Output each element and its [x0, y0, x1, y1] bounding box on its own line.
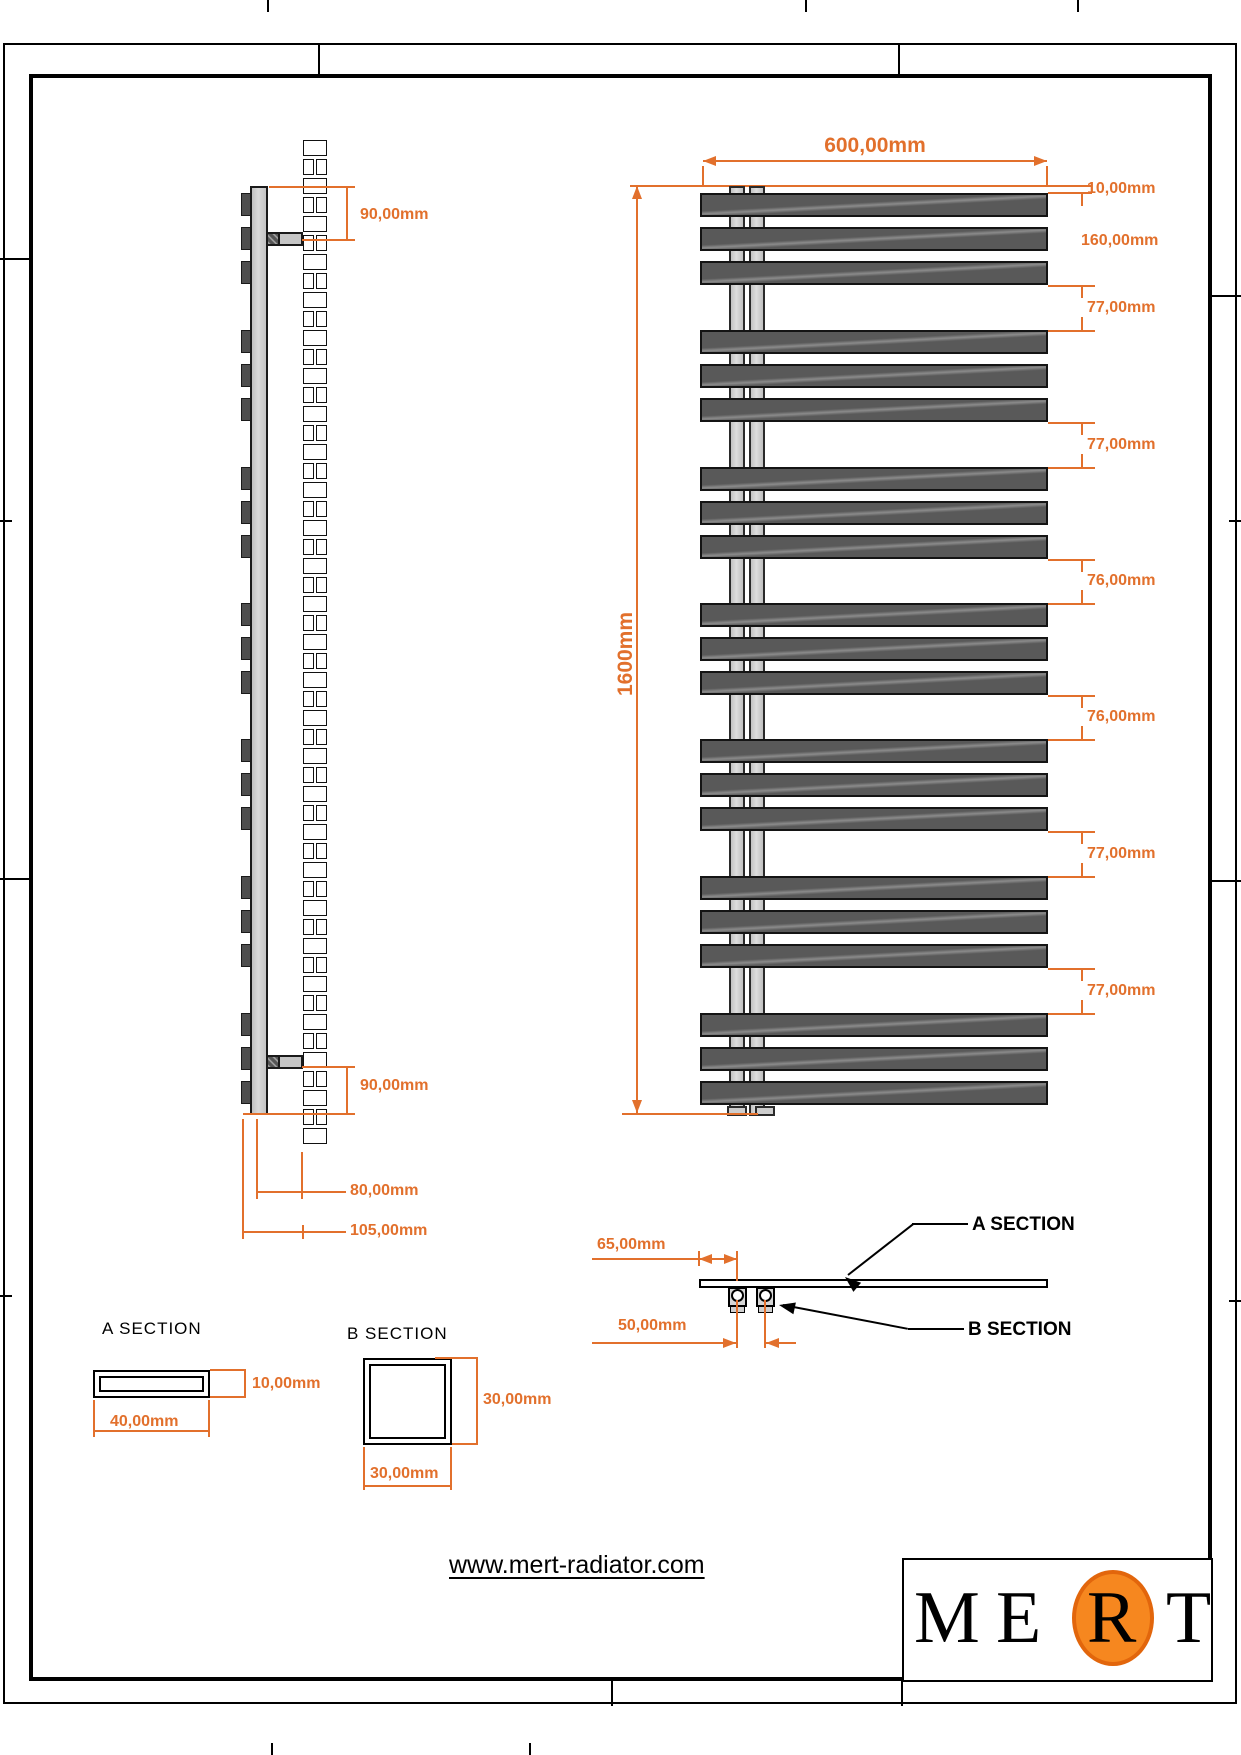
brick — [303, 368, 327, 384]
brick-course — [303, 919, 327, 935]
brick-course — [303, 824, 327, 840]
brick — [316, 273, 327, 289]
brick-course — [303, 596, 327, 612]
brick — [316, 919, 327, 935]
brick-course — [303, 292, 327, 308]
brick-course — [303, 938, 327, 954]
dim-label-1600: 1600mm — [614, 609, 638, 699]
brick-course — [303, 254, 327, 270]
dim-label-160: 160,00mm — [1081, 232, 1158, 250]
dim-label-b-30-bottom: 30,00mm — [370, 1465, 439, 1483]
brick-course — [303, 216, 327, 232]
brick — [303, 596, 327, 612]
brick — [316, 1033, 327, 1049]
dim-label-65: 65,00mm — [597, 1236, 666, 1254]
brick — [316, 881, 327, 897]
arrowhead — [766, 1338, 779, 1348]
dim-line — [1048, 876, 1095, 878]
zone-mark — [1212, 295, 1239, 297]
brick-course — [303, 330, 327, 346]
radiator-bar — [700, 637, 1048, 661]
dim-line — [242, 1119, 244, 1239]
brick-course — [303, 425, 327, 441]
brick — [303, 957, 314, 973]
brick — [303, 387, 314, 403]
brick-course — [303, 273, 327, 289]
zone-mark — [3, 258, 31, 260]
radiator-bar — [700, 261, 1048, 285]
dim-line — [1048, 603, 1095, 605]
brick-course — [303, 197, 327, 213]
brick-course — [303, 710, 327, 726]
radiator-bar — [700, 398, 1048, 422]
dim-label-gap: 76,00mm — [1087, 572, 1156, 590]
dim-line — [698, 1251, 700, 1266]
brick-course — [303, 995, 327, 1011]
brick — [303, 729, 314, 745]
dim-line — [1081, 968, 1083, 981]
leader-line — [912, 1223, 968, 1225]
dim-line — [592, 1342, 736, 1344]
brick-course — [303, 501, 327, 517]
dim-line — [1048, 330, 1095, 332]
dim-line — [592, 1258, 737, 1260]
brick — [303, 216, 327, 232]
dim-line — [1048, 192, 1092, 194]
brick — [303, 501, 314, 517]
dim-line — [242, 1231, 346, 1233]
zone-mark — [318, 43, 320, 76]
dim-line — [1048, 467, 1095, 469]
zone-mark — [611, 1681, 613, 1706]
brick — [303, 463, 314, 479]
dim-line — [1048, 739, 1095, 741]
website-link[interactable]: www.mert-radiator.com — [449, 1551, 705, 1580]
dim-line — [1081, 831, 1083, 844]
brick-course — [303, 482, 327, 498]
brick-course — [303, 539, 327, 555]
zone-mark — [3, 878, 31, 880]
zone-mark — [529, 1743, 531, 1755]
brick — [303, 710, 327, 726]
dim-label-a-40: 40,00mm — [110, 1413, 179, 1431]
dim-line-600 — [703, 160, 1047, 162]
dim-line — [256, 1191, 346, 1193]
brick — [316, 577, 327, 593]
brick — [303, 482, 327, 498]
brick-course — [303, 1014, 327, 1030]
brick — [316, 805, 327, 821]
radiator-bar — [700, 364, 1048, 388]
dim-line — [1048, 968, 1095, 970]
radiator-bar — [700, 193, 1048, 217]
zone-mark — [0, 1295, 12, 1297]
brick — [303, 919, 314, 935]
brick — [303, 1128, 327, 1144]
brick — [303, 349, 314, 365]
dim-label-90-top: 90,00mm — [360, 206, 429, 224]
zone-mark — [898, 43, 900, 76]
brick-course — [303, 767, 327, 783]
brick-course — [303, 463, 327, 479]
section-a-title: A SECTION — [102, 1319, 202, 1339]
dim-line — [1046, 166, 1048, 186]
radiator-bar — [700, 739, 1048, 763]
brick — [303, 577, 314, 593]
brick — [316, 995, 327, 1011]
brick — [303, 311, 314, 327]
dim-label-a-10: 10,00mm — [252, 1375, 321, 1393]
brick-course — [303, 140, 327, 156]
dim-line — [1081, 559, 1083, 572]
arrowhead — [632, 1100, 642, 1113]
dim-line — [452, 1443, 478, 1445]
dim-line — [1081, 317, 1083, 330]
dim-line — [435, 1357, 478, 1359]
logo-letter-t: T — [1166, 1574, 1211, 1663]
brick — [303, 235, 314, 251]
brick — [316, 843, 327, 859]
brick — [316, 729, 327, 745]
brick — [303, 159, 314, 175]
brick-wall — [303, 140, 327, 1148]
brick — [316, 539, 327, 555]
dim-line — [346, 1066, 348, 1115]
brick — [303, 1090, 327, 1106]
brick-course — [303, 558, 327, 574]
dim-line — [1048, 559, 1095, 561]
dim-label-90-bottom: 90,00mm — [360, 1077, 429, 1095]
brick — [303, 406, 327, 422]
zone-mark — [267, 0, 269, 12]
brick-course — [303, 862, 327, 878]
dim-line — [1081, 695, 1083, 708]
dim-label-50: 50,00mm — [618, 1317, 687, 1335]
wall-bracket-bottom-hatch — [266, 1055, 280, 1069]
dim-label-gap: 77,00mm — [1087, 845, 1156, 863]
brick-course — [303, 235, 327, 251]
zone-mark — [805, 0, 807, 12]
brick — [303, 273, 314, 289]
brick — [316, 425, 327, 441]
dim-centerline — [736, 1300, 738, 1348]
dim-line — [702, 166, 704, 186]
callout-b-section: B SECTION — [968, 1319, 1071, 1341]
radiator-bar — [700, 773, 1048, 797]
logo-letter-e: E — [996, 1574, 1041, 1663]
dim-line — [1081, 590, 1083, 603]
dim-line — [1081, 285, 1083, 298]
wall-bracket-top-hatch — [266, 232, 280, 246]
brick — [303, 140, 327, 156]
brick-course — [303, 976, 327, 992]
dim-label-105: 105,00mm — [350, 1222, 427, 1240]
side-view-panel — [250, 186, 268, 1115]
arrowhead — [1034, 156, 1047, 166]
radiator-bar — [700, 944, 1048, 968]
brick — [303, 653, 314, 669]
brick-course — [303, 881, 327, 897]
brick — [316, 349, 327, 365]
radiator-bar — [700, 227, 1048, 251]
dim-line — [736, 1251, 738, 1281]
dim-label-10: 10,00mm — [1087, 180, 1156, 198]
brick — [303, 805, 314, 821]
brick-course — [303, 520, 327, 536]
brick-course — [303, 843, 327, 859]
dim-label-b-30-right: 30,00mm — [483, 1391, 552, 1409]
dim-line — [476, 1357, 478, 1445]
brick — [316, 197, 327, 213]
dim-line — [1048, 1013, 1095, 1015]
zone-mark — [1229, 520, 1241, 522]
radiator-bar — [700, 1013, 1048, 1037]
radiator-bar — [700, 535, 1048, 559]
dim-line — [346, 186, 348, 241]
tube-foot-right — [755, 1106, 775, 1116]
dim-line — [243, 1113, 355, 1115]
brick — [316, 159, 327, 175]
brick — [316, 1071, 327, 1087]
dim-label-80: 80,00mm — [350, 1182, 419, 1200]
brick — [303, 197, 314, 213]
brick-course — [303, 748, 327, 764]
dim-line — [1048, 831, 1095, 833]
plan-panel — [699, 1279, 1048, 1288]
dim-label-gap: 77,00mm — [1087, 299, 1156, 317]
brick — [316, 957, 327, 973]
brick — [303, 786, 327, 802]
brick-course — [303, 387, 327, 403]
brick-course — [303, 349, 327, 365]
dim-line — [244, 1369, 246, 1398]
brick-course — [303, 900, 327, 916]
arrowhead — [632, 186, 642, 199]
brick — [316, 767, 327, 783]
brick-course — [303, 729, 327, 745]
brick — [303, 862, 327, 878]
dim-label-gap: 77,00mm — [1087, 436, 1156, 454]
brick — [303, 539, 314, 555]
dim-line — [1081, 1000, 1083, 1013]
brick — [303, 558, 327, 574]
brick — [303, 843, 314, 859]
logo-letter-r: R — [1087, 1574, 1136, 1663]
leader-line — [908, 1328, 964, 1330]
dim-line — [363, 1447, 365, 1490]
dim-line — [1048, 285, 1095, 287]
arrowhead — [723, 1338, 736, 1348]
brick-course — [303, 957, 327, 973]
brick — [303, 900, 327, 916]
dim-line — [1081, 422, 1083, 435]
brick-course — [303, 615, 327, 631]
zone-mark — [1229, 1300, 1241, 1302]
brick-course — [303, 444, 327, 460]
zone-mark — [901, 1681, 903, 1706]
brick — [303, 976, 327, 992]
brick — [316, 463, 327, 479]
brick — [316, 311, 327, 327]
brick — [316, 615, 327, 631]
brick-course — [303, 1033, 327, 1049]
brick — [303, 672, 327, 688]
brick — [316, 1109, 327, 1125]
dim-line — [1081, 192, 1083, 206]
brick-course — [303, 786, 327, 802]
zone-mark — [1077, 0, 1079, 12]
arrowhead — [703, 156, 716, 166]
brick — [303, 691, 314, 707]
radiator-bar — [700, 330, 1048, 354]
arrowhead — [699, 1254, 712, 1264]
brick — [303, 292, 327, 308]
zone-mark — [1212, 880, 1239, 882]
radiator-bar — [700, 671, 1048, 695]
dim-line — [210, 1396, 246, 1398]
callout-a-section: A SECTION — [972, 1214, 1075, 1236]
brick — [303, 938, 327, 954]
dim-line — [450, 1447, 452, 1490]
brick — [316, 387, 327, 403]
brick — [303, 425, 314, 441]
brick — [303, 1071, 314, 1087]
radiator-bar — [700, 876, 1048, 900]
brick-course — [303, 368, 327, 384]
brick — [316, 235, 327, 251]
radiator-bar — [700, 501, 1048, 525]
brick — [303, 748, 327, 764]
brick-course — [303, 1071, 327, 1087]
brick — [303, 615, 314, 631]
mert-logo: M E R T — [902, 1558, 1213, 1682]
brick — [303, 444, 327, 460]
brick-course — [303, 311, 327, 327]
brick — [303, 1109, 314, 1125]
radiator-bar — [700, 603, 1048, 627]
dim-line — [1048, 422, 1095, 424]
dim-line — [269, 186, 355, 188]
dim-label-gap: 77,00mm — [1087, 982, 1156, 1000]
dim-line — [1081, 454, 1083, 467]
drawing-sheet: 90,00mm 90,00mm 80,00mm 105,00mm 600,00m… — [0, 0, 1241, 1755]
dim-line — [210, 1369, 246, 1371]
brick-course — [303, 159, 327, 175]
dim-line — [363, 1485, 452, 1487]
radiator-bar — [700, 910, 1048, 934]
brick-course — [303, 634, 327, 650]
brick-course — [303, 577, 327, 593]
radiator-bar — [700, 467, 1048, 491]
brick-course — [303, 691, 327, 707]
brick-course — [303, 406, 327, 422]
brick-course — [303, 1090, 327, 1106]
section-a-inner — [99, 1376, 204, 1392]
dim-line — [256, 1119, 258, 1199]
brick-course — [303, 653, 327, 669]
section-b-title: B SECTION — [347, 1324, 448, 1344]
dim-line — [1081, 863, 1083, 876]
radiator-bar — [700, 1047, 1048, 1071]
brick-course — [303, 672, 327, 688]
brick — [303, 254, 327, 270]
zone-mark — [0, 520, 12, 522]
dim-line — [1048, 695, 1095, 697]
dim-label-600: 600,00mm — [775, 134, 975, 158]
brick — [303, 881, 314, 897]
radiator-bar — [700, 1081, 1048, 1105]
brick-course — [303, 1109, 327, 1125]
dim-extension-top — [630, 185, 1092, 187]
brick — [316, 691, 327, 707]
brick — [303, 995, 314, 1011]
brick — [303, 520, 327, 536]
dim-baseline — [622, 1113, 758, 1115]
brick — [303, 1014, 327, 1030]
brick — [303, 634, 327, 650]
radiator-bar — [700, 807, 1048, 831]
zone-mark — [271, 1743, 273, 1755]
section-b-inner — [369, 1364, 446, 1439]
brick — [316, 653, 327, 669]
brick — [303, 330, 327, 346]
brick-course — [303, 1128, 327, 1144]
brick — [303, 767, 314, 783]
brick — [303, 1033, 314, 1049]
logo-letter-m: M — [914, 1574, 980, 1663]
brick — [303, 824, 327, 840]
dim-line — [1081, 726, 1083, 739]
dim-label-gap: 76,00mm — [1087, 708, 1156, 726]
brick-course — [303, 805, 327, 821]
brick — [316, 501, 327, 517]
